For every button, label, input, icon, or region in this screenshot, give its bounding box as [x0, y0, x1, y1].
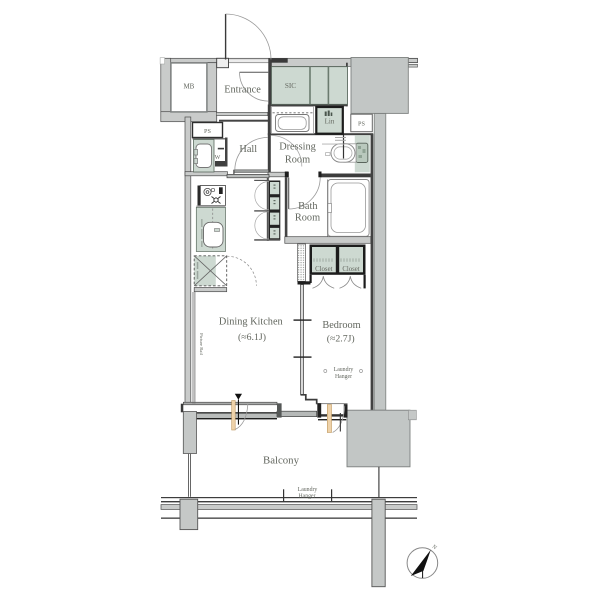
svg-text:Hanger: Hanger — [335, 374, 352, 380]
svg-text:Bath: Bath — [298, 201, 318, 212]
svg-text:Bedroom: Bedroom — [322, 320, 360, 331]
svg-text:Dressing: Dressing — [279, 142, 316, 153]
svg-text:(≈6.1J): (≈6.1J) — [238, 332, 266, 343]
svg-text:Lin: Lin — [325, 118, 335, 126]
svg-text:W: W — [215, 155, 221, 161]
svg-text:Closet: Closet — [342, 266, 359, 273]
svg-text:SIC: SIC — [285, 82, 296, 90]
svg-text:Laundry: Laundry — [334, 367, 354, 373]
svg-text:MB: MB — [183, 83, 194, 91]
svg-text:Hanger: Hanger — [298, 493, 315, 499]
svg-text:(≈2.7J): (≈2.7J) — [327, 334, 355, 345]
svg-text:Hall: Hall — [239, 144, 257, 155]
svg-text:Laundry: Laundry — [298, 487, 318, 493]
svg-text:Room: Room — [295, 212, 320, 223]
svg-text:PS: PS — [358, 121, 365, 128]
svg-text:PS: PS — [204, 128, 211, 135]
svg-text:Dining Kitchen: Dining Kitchen — [219, 317, 283, 328]
svg-text:Picture Rail: Picture Rail — [199, 333, 204, 356]
svg-text:Balcony: Balcony — [263, 455, 300, 467]
svg-text:Entrance: Entrance — [224, 85, 261, 96]
svg-text:Closet: Closet — [315, 266, 332, 273]
svg-text:Room: Room — [285, 154, 310, 165]
